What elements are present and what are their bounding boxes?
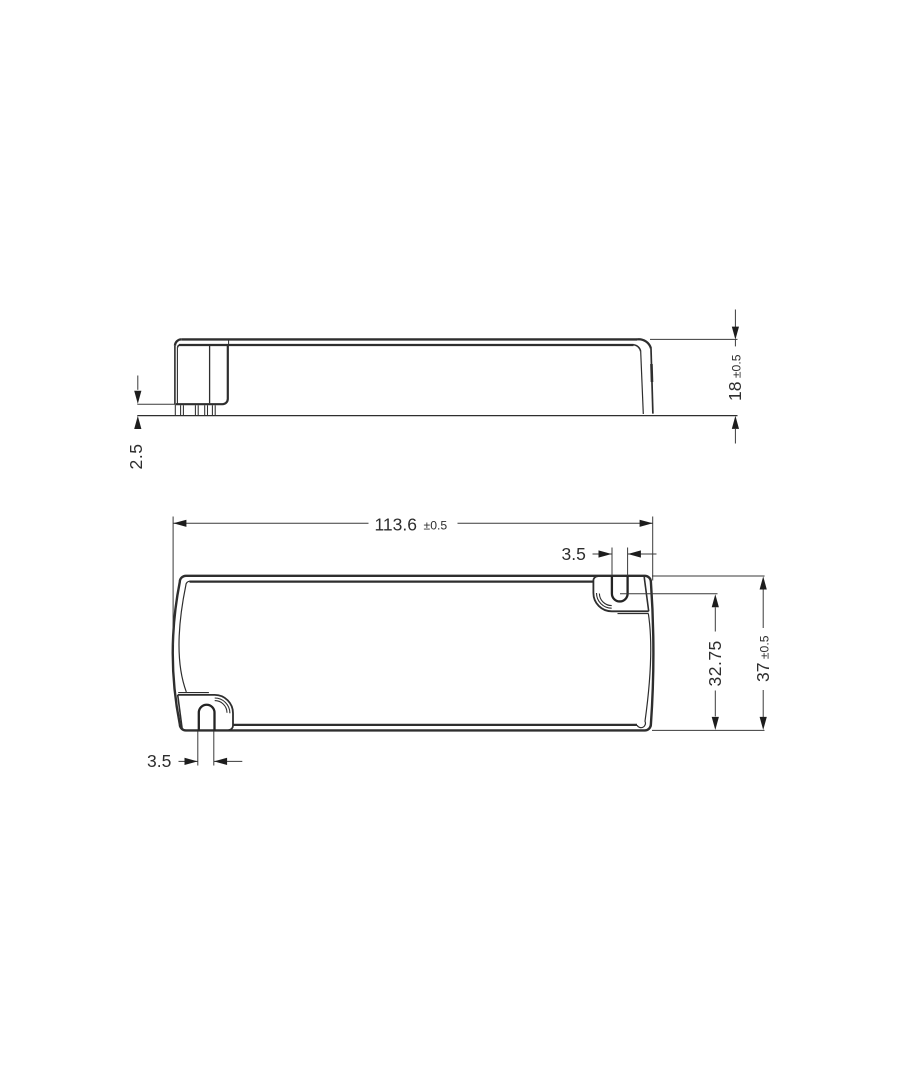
svg-text:37 ±0.5: 37 ±0.5	[753, 635, 773, 682]
svg-text:113.6: 113.6	[375, 515, 418, 535]
svg-text:32.75: 32.75	[705, 640, 725, 686]
svg-text:2.5: 2.5	[126, 443, 146, 469]
svg-text:3.5: 3.5	[562, 544, 586, 564]
svg-text:18 ±0.5: 18 ±0.5	[725, 354, 745, 401]
svg-text:3.5: 3.5	[147, 751, 171, 771]
svg-text:±0.5: ±0.5	[424, 518, 448, 532]
